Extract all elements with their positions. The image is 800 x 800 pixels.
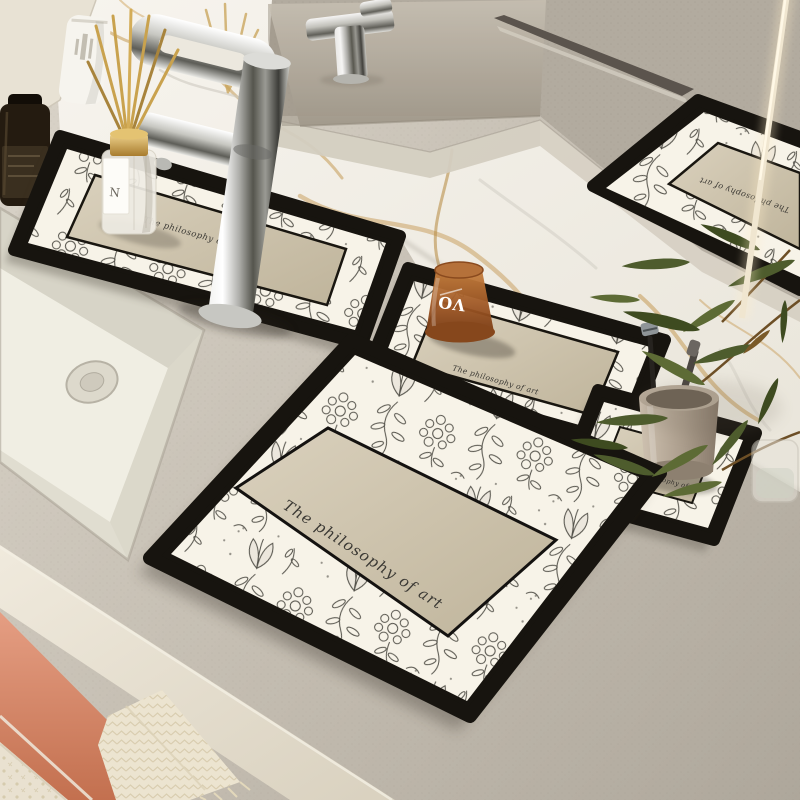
scene-svg: The philosophy of art N The philosophy o… (0, 0, 800, 800)
glass-vase (752, 440, 798, 502)
diffuser-label-letter: N (109, 185, 121, 200)
vase-water (756, 468, 794, 498)
diffuser-cap-top (110, 129, 148, 140)
cup-bottom (435, 262, 483, 278)
cup-logo-text: VO (436, 292, 467, 315)
bathroom-countertop-scene: The philosophy of art N The philosophy o… (0, 0, 800, 800)
shadow (638, 380, 782, 436)
